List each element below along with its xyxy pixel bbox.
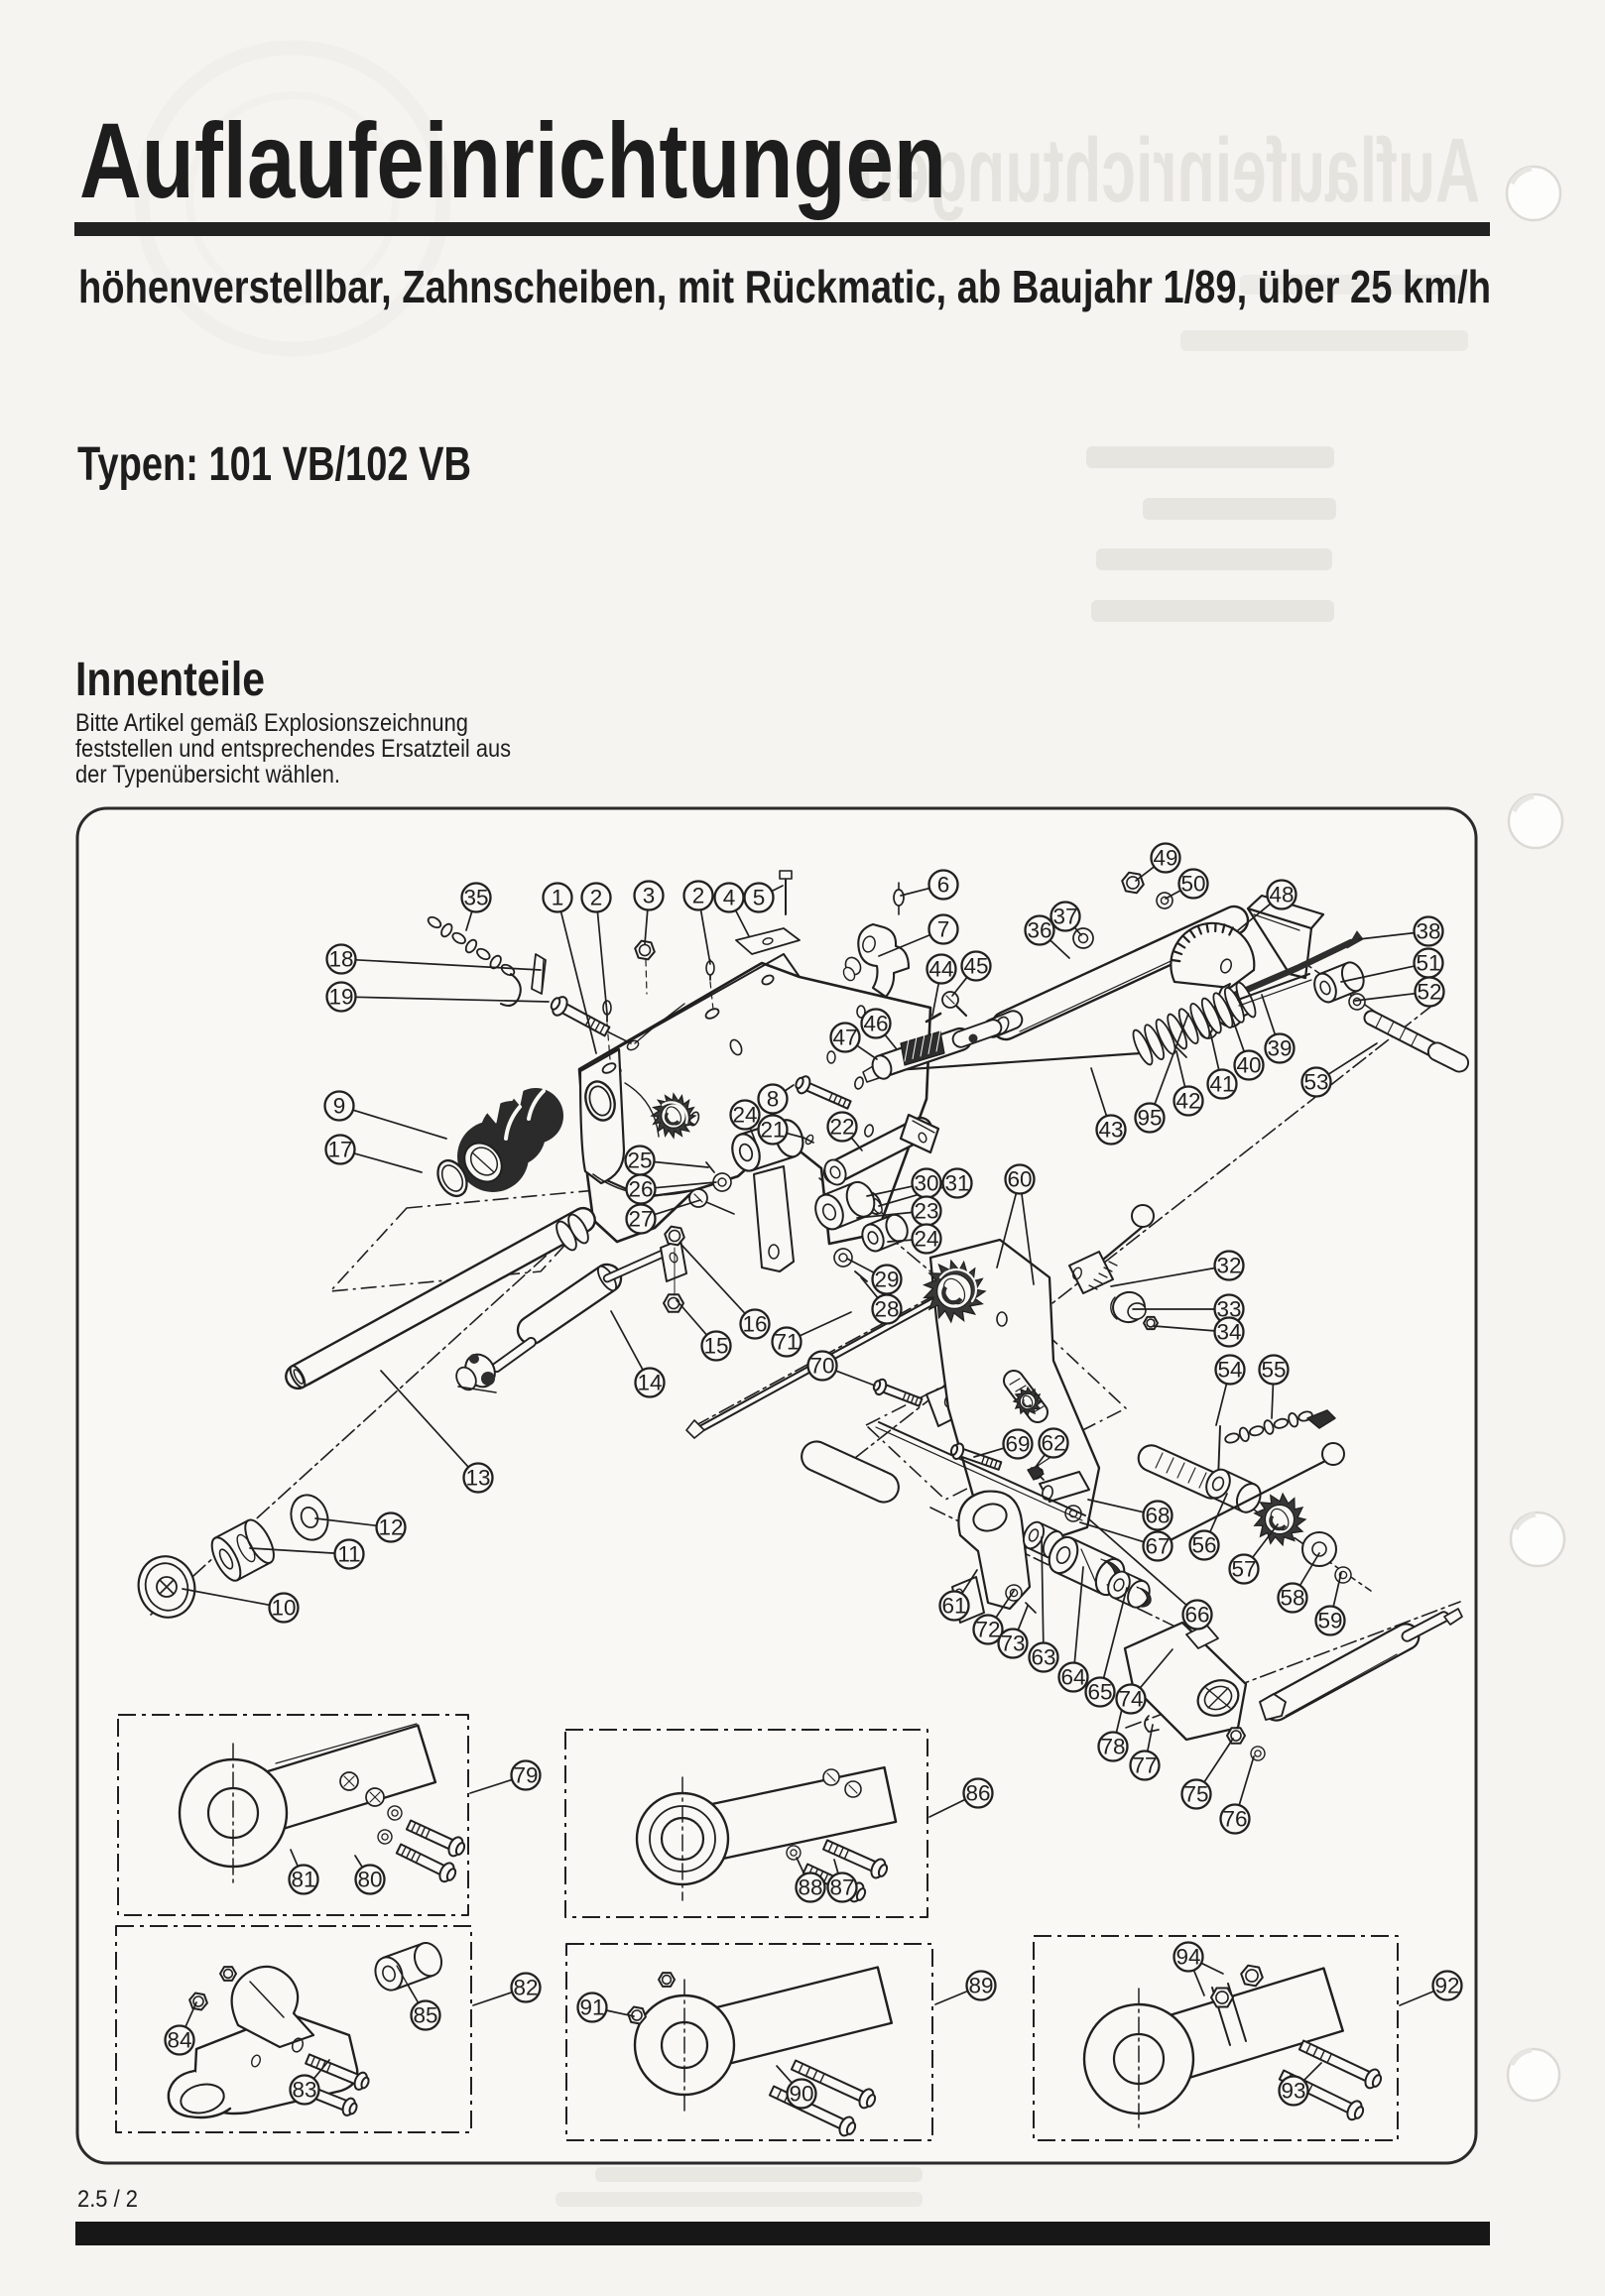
svg-text:45: 45 (963, 954, 988, 979)
svg-text:76: 76 (1222, 1807, 1247, 1832)
svg-text:5: 5 (753, 886, 766, 910)
svg-text:78: 78 (1100, 1735, 1125, 1759)
svg-text:61: 61 (941, 1594, 966, 1619)
svg-text:81: 81 (291, 1868, 315, 1892)
svg-text:3: 3 (643, 884, 656, 908)
svg-text:68: 68 (1145, 1504, 1170, 1528)
svg-text:31: 31 (944, 1171, 969, 1196)
svg-text:89: 89 (968, 1974, 993, 1998)
svg-text:88: 88 (798, 1875, 822, 1900)
svg-text:9: 9 (333, 1094, 346, 1119)
svg-text:2: 2 (692, 884, 705, 908)
svg-text:90: 90 (789, 2082, 813, 2107)
svg-text:43: 43 (1098, 1118, 1123, 1143)
svg-text:2.5 / 2: 2.5 / 2 (77, 2186, 138, 2213)
svg-text:25: 25 (627, 1148, 652, 1173)
svg-text:1: 1 (552, 886, 564, 910)
svg-text:91: 91 (579, 1995, 604, 2020)
svg-text:der Typenübersicht wählen.: der Typenübersicht wählen. (75, 761, 340, 788)
svg-text:Innenteile: Innenteile (75, 654, 265, 706)
svg-text:höhenverstellbar, Zahnscheiben: höhenverstellbar, Zahnscheiben, mit Rück… (78, 261, 1491, 312)
svg-text:52: 52 (1417, 980, 1441, 1005)
svg-text:16: 16 (742, 1312, 767, 1337)
svg-text:38: 38 (1416, 919, 1440, 944)
svg-text:62: 62 (1041, 1431, 1065, 1456)
svg-text:21: 21 (760, 1118, 785, 1143)
svg-text:94: 94 (1175, 1945, 1200, 1970)
svg-text:57: 57 (1231, 1557, 1256, 1582)
svg-text:77: 77 (1132, 1753, 1157, 1778)
svg-text:84: 84 (167, 2028, 191, 2053)
svg-text:41: 41 (1209, 1072, 1234, 1097)
svg-text:17: 17 (327, 1138, 352, 1162)
svg-text:34: 34 (1216, 1320, 1241, 1345)
svg-text:83: 83 (292, 2078, 316, 2103)
svg-text:73: 73 (1000, 1631, 1025, 1656)
svg-text:64: 64 (1060, 1665, 1085, 1690)
svg-text:50: 50 (1180, 872, 1205, 897)
svg-text:Auflaufeinrichtungen: Auflaufeinrichtungen (79, 100, 946, 220)
svg-text:14: 14 (637, 1371, 662, 1395)
svg-text:82: 82 (513, 1976, 538, 2000)
svg-text:10: 10 (271, 1596, 296, 1621)
svg-text:46: 46 (863, 1012, 888, 1036)
svg-text:59: 59 (1317, 1609, 1342, 1633)
svg-text:51: 51 (1416, 951, 1440, 976)
svg-text:13: 13 (465, 1466, 490, 1491)
svg-text:80: 80 (357, 1868, 382, 1892)
svg-text:48: 48 (1269, 883, 1294, 907)
svg-text:86: 86 (965, 1781, 990, 1806)
svg-text:35: 35 (463, 886, 488, 910)
svg-text:27: 27 (628, 1207, 653, 1232)
svg-text:67: 67 (1145, 1534, 1170, 1559)
svg-text:93: 93 (1281, 2079, 1305, 2104)
svg-text:12: 12 (378, 1515, 403, 1540)
svg-text:4: 4 (723, 886, 736, 910)
svg-text:47: 47 (832, 1026, 857, 1050)
svg-text:26: 26 (628, 1177, 653, 1202)
svg-text:63: 63 (1031, 1645, 1055, 1670)
svg-text:Typen: 101 VB/102 VB: Typen: 101 VB/102 VB (77, 438, 471, 491)
svg-text:40: 40 (1236, 1053, 1261, 1078)
svg-text:69: 69 (1005, 1432, 1030, 1457)
svg-text:92: 92 (1434, 1974, 1459, 1998)
svg-text:37: 37 (1052, 905, 1077, 929)
svg-text:feststellen und entsprechendes: feststellen und entsprechendes Ersatztei… (75, 735, 511, 763)
svg-text:18: 18 (328, 947, 353, 972)
svg-text:11: 11 (337, 1542, 360, 1567)
svg-text:54: 54 (1217, 1358, 1242, 1383)
svg-text:56: 56 (1191, 1533, 1216, 1558)
svg-text:95: 95 (1137, 1106, 1162, 1131)
svg-text:70: 70 (809, 1354, 834, 1379)
svg-text:71: 71 (774, 1330, 799, 1355)
svg-text:29: 29 (874, 1268, 899, 1292)
svg-text:87: 87 (829, 1875, 854, 1900)
svg-text:58: 58 (1280, 1586, 1304, 1611)
svg-text:49: 49 (1153, 846, 1177, 871)
svg-text:36: 36 (1027, 918, 1051, 943)
svg-text:85: 85 (413, 2003, 437, 2028)
svg-text:15: 15 (703, 1334, 728, 1359)
svg-text:42: 42 (1175, 1089, 1200, 1114)
svg-text:24: 24 (914, 1227, 938, 1252)
svg-text:66: 66 (1184, 1603, 1209, 1628)
svg-text:74: 74 (1118, 1687, 1143, 1712)
svg-text:55: 55 (1261, 1358, 1286, 1383)
svg-text:2: 2 (590, 886, 603, 910)
svg-text:7: 7 (937, 917, 950, 942)
svg-text:53: 53 (1303, 1070, 1328, 1095)
svg-text:32: 32 (1216, 1254, 1241, 1278)
svg-text:6: 6 (937, 873, 950, 898)
svg-text:8: 8 (767, 1087, 780, 1112)
svg-text:39: 39 (1267, 1036, 1292, 1061)
svg-text:28: 28 (874, 1297, 899, 1322)
svg-text:65: 65 (1087, 1680, 1112, 1705)
svg-text:22: 22 (829, 1115, 854, 1140)
svg-text:72: 72 (975, 1618, 1000, 1642)
svg-text:Bitte Artikel gemäß Explosions: Bitte Artikel gemäß Explosionszeichnung (75, 709, 468, 737)
svg-text:19: 19 (328, 985, 353, 1010)
svg-text:23: 23 (914, 1199, 938, 1224)
svg-text:79: 79 (513, 1763, 538, 1788)
svg-text:Auflaufeinrichtungen: Auflaufeinrichtungen (857, 120, 1480, 221)
svg-text:44: 44 (928, 957, 953, 982)
svg-text:75: 75 (1183, 1782, 1208, 1807)
svg-text:30: 30 (914, 1171, 938, 1196)
svg-text:60: 60 (1007, 1167, 1032, 1192)
svg-text:24: 24 (732, 1103, 757, 1128)
